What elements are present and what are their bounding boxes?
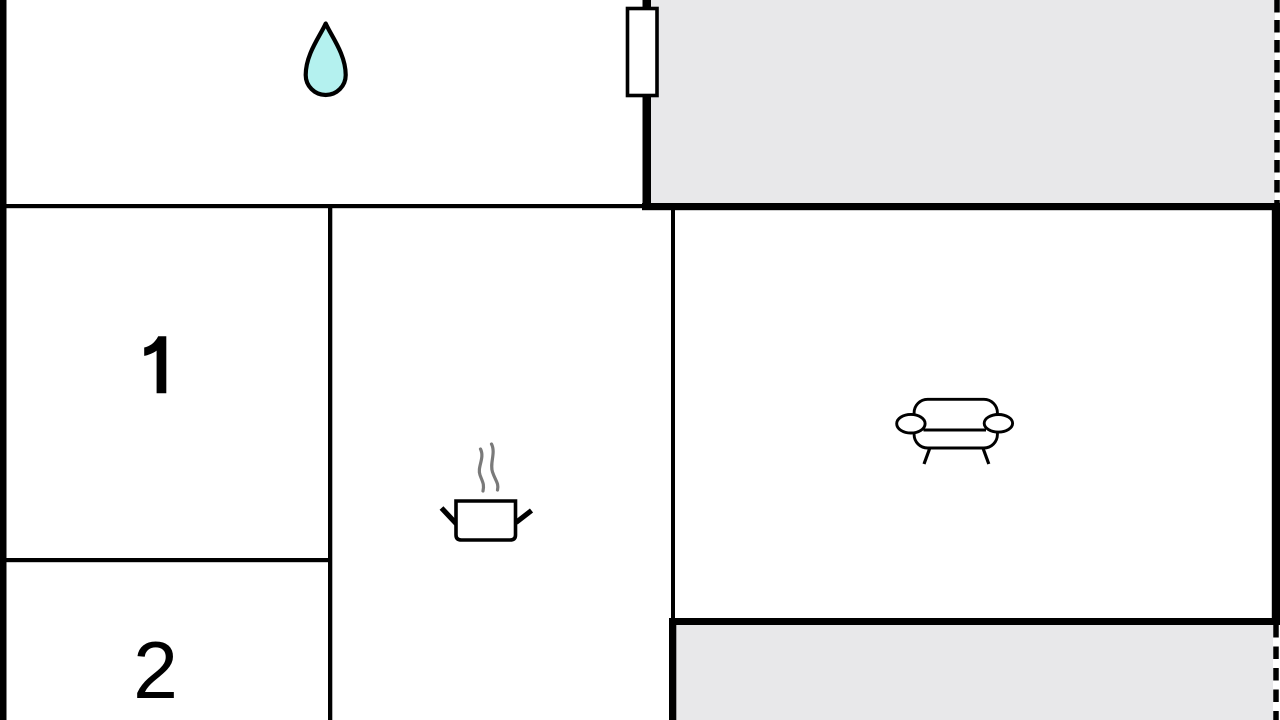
svg-text:2: 2 (133, 626, 178, 716)
